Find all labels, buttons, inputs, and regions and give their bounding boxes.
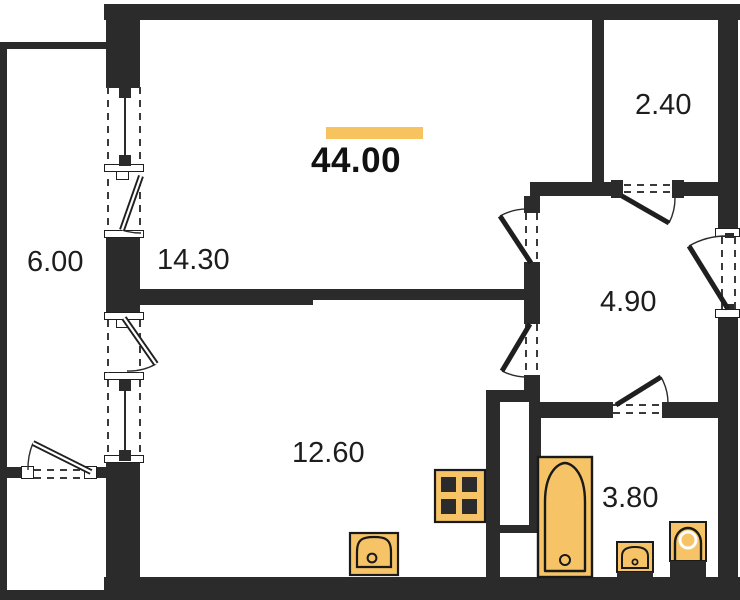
wall-bath-top-left <box>538 402 602 418</box>
balcony-door-leaf <box>33 443 91 472</box>
room-label-living: 14.30 <box>157 244 230 277</box>
door-dash <box>525 213 527 263</box>
door-dash <box>536 213 538 263</box>
window-mullion-anchor <box>119 87 131 98</box>
wall-room-divider-thick <box>106 289 313 305</box>
wall-left-low <box>106 462 140 593</box>
wall-hall-left-b <box>524 262 540 324</box>
total-area-label: 44.00 <box>311 141 401 181</box>
wall-balcony-bottom <box>0 590 106 600</box>
window-mullion <box>124 98 126 156</box>
wall-shaft-right <box>529 402 541 533</box>
window-mullion-anchor <box>119 155 131 166</box>
door-arc <box>127 364 156 371</box>
wall-balcony-left-top <box>0 42 106 49</box>
wall-kitchen-right <box>486 390 500 577</box>
door-frame <box>104 230 144 238</box>
door-post <box>600 402 613 418</box>
bathtub <box>538 457 592 577</box>
door-dash <box>34 469 84 471</box>
balcony-door-leaf <box>33 443 91 472</box>
window-frame <box>715 309 740 318</box>
door-dash <box>624 184 672 186</box>
door-dash <box>624 191 672 193</box>
window-mullion-anchor <box>119 450 131 461</box>
window-mullion <box>124 391 126 451</box>
window-frame-tick <box>725 304 734 309</box>
stove <box>435 470 485 522</box>
door-post-white <box>84 466 97 479</box>
wall-hall-left-a <box>524 196 540 213</box>
wall-topleft-block <box>106 4 140 88</box>
window-frame-tick <box>725 233 734 238</box>
wall-top <box>104 4 740 20</box>
door-dash <box>139 320 141 373</box>
door-post-white <box>21 466 34 479</box>
door-arc <box>669 197 675 223</box>
door-leaf <box>616 377 661 405</box>
wall-bath-top-right <box>674 402 718 418</box>
door-leaf <box>622 196 669 223</box>
wall-bottom <box>104 577 740 600</box>
wall-shaft-top <box>486 390 540 402</box>
bathroom-sink <box>617 542 653 577</box>
kitchen-sink <box>350 533 398 575</box>
door-dash <box>613 412 663 414</box>
total-area-accent-bar <box>326 127 423 139</box>
toilet <box>670 522 706 577</box>
wall-balcony-door-stub-l <box>7 467 22 478</box>
wall-shaft-divider <box>500 525 541 533</box>
wall-loggia-divider <box>592 4 604 196</box>
door-dash <box>613 404 663 406</box>
door-hinge-plate <box>116 171 129 180</box>
door-dash <box>107 179 109 231</box>
window-mullion-anchor <box>119 380 131 391</box>
door-frame <box>104 372 144 380</box>
door-dash <box>536 324 538 376</box>
room-label-hallway: 4.90 <box>600 286 656 319</box>
door-dash <box>34 477 84 479</box>
room-label-balcony-top: 2.40 <box>635 89 691 122</box>
room-label-bathroom: 3.80 <box>602 482 658 515</box>
room-label-balcony-left: 6.00 <box>27 246 83 279</box>
wall-hall-top-right <box>683 182 718 196</box>
room-label-kitchen: 12.60 <box>292 437 365 470</box>
window-dash <box>721 237 723 310</box>
door-post <box>611 180 623 198</box>
door-dash <box>525 324 527 376</box>
floorplan-canvas: 44.00 14.30 6.00 2.40 4.90 12.60 3.80 <box>0 0 740 600</box>
door-dash <box>107 320 109 373</box>
wall-balcony-left-side <box>0 42 7 590</box>
window-dash <box>139 380 141 456</box>
window-dash <box>734 237 736 310</box>
door-arc <box>661 377 668 404</box>
door-hinge-plate <box>116 319 129 328</box>
wall-right-bottom <box>718 317 738 600</box>
window-dash <box>107 380 109 456</box>
wall-balcony-door-stub-r <box>97 467 106 478</box>
wall-hall-top-left <box>530 182 614 196</box>
wall-room-divider-thin <box>313 289 540 300</box>
window-dash <box>107 87 109 165</box>
door-dash <box>139 179 141 231</box>
wall-right-top <box>718 4 738 230</box>
window-dash <box>139 87 141 165</box>
